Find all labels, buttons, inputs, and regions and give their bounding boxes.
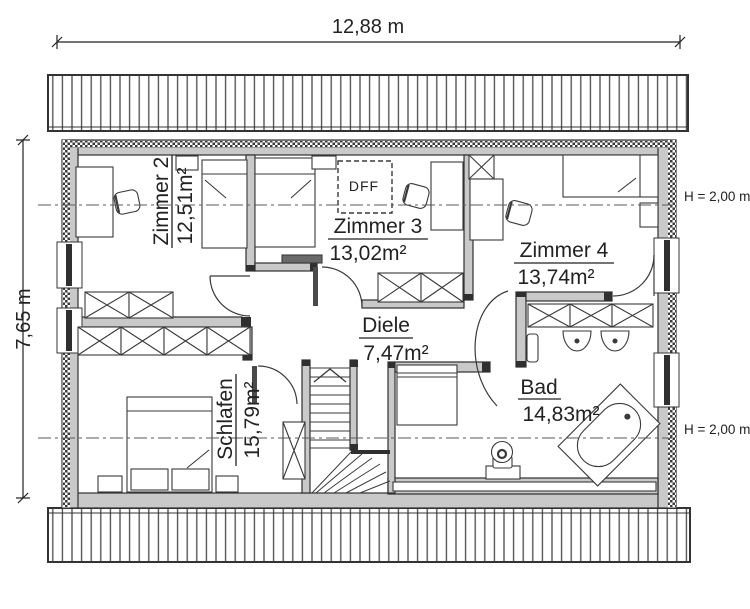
wardrobe-zimmer2 (85, 292, 173, 318)
bed-zimmer2 (202, 160, 247, 248)
nightstand-schlafen-left (98, 476, 122, 492)
room-area-schlafen: 15,79m² (241, 381, 264, 458)
room-label-zimmer4: Zimmer 4 (520, 239, 609, 262)
bed-zimmer4 (563, 155, 658, 197)
roof-overhang-bottom (48, 508, 690, 562)
room-area-bad: 14,83m² (522, 403, 599, 426)
wardrobe-schlafen-tall (283, 422, 305, 479)
roof-overhang-top (48, 75, 688, 131)
radiator-bad (527, 334, 538, 362)
desk-zimmer2 (76, 167, 113, 237)
room-area-zimmer3: 13,02m² (329, 242, 406, 265)
cabinet-row-bad (528, 304, 653, 327)
chimney (312, 156, 336, 169)
wall-zimmer3-diele (255, 263, 317, 271)
wall-exterior-bottom (70, 493, 668, 508)
window-right-zimmer4 (654, 238, 679, 293)
wall-zimmer4-bad (526, 292, 612, 301)
chair-zimmer2 (113, 189, 141, 216)
wall-niche-west (388, 362, 395, 493)
double-bed-schlafen (127, 397, 212, 492)
height-dimension-label: 7,65 m (13, 288, 35, 349)
room-area-zimmer4: 13,74m² (517, 266, 594, 289)
room-label-zimmer2: Zimmer 2 (150, 157, 173, 246)
sideboard-zimmer3 (282, 255, 322, 263)
window-right-bad (654, 353, 679, 407)
floor-plan-drawing: 12,88 m 7,65 m DFF Zimmer 2 12,51m² Zimm… (0, 0, 750, 609)
room-label-schlafen: Schlafen (214, 378, 237, 460)
room-label-zimmer3: Zimmer 3 (334, 215, 423, 238)
nightstand-schlafen-right (216, 476, 238, 492)
room-area-zimmer2: 12,51m² (174, 167, 197, 244)
wardrobe-diele (378, 273, 463, 302)
room-area-diele: 7,47m² (363, 342, 428, 365)
nightstand-zimmer4 (640, 203, 658, 227)
storage-niche-cabinet (397, 365, 457, 425)
room-label-bad: Bad (520, 376, 557, 399)
desk-zimmer4 (470, 179, 503, 240)
window-left-zimmer2 (57, 242, 82, 288)
roof-window-label: DFF (349, 178, 379, 194)
bed-zimmer3 (255, 158, 315, 247)
wardrobe-zimmer4 (469, 155, 494, 179)
width-dimension-label: 12,88 m (332, 16, 404, 38)
stair-railing (350, 360, 357, 450)
kneewall-label-lower: H = 2,00 m (684, 422, 750, 437)
floor-plan: 12,88 m 7,65 m DFF Zimmer 2 12,51m² Zimm… (0, 0, 750, 609)
kneewall-strip (393, 482, 656, 491)
room-label-diele: Diele (362, 314, 410, 337)
desk-zimmer3 (431, 162, 463, 230)
wardrobe-schlafen (78, 327, 250, 355)
wall-bad-west (516, 292, 526, 367)
kneewall-label-upper: H = 2,00 m (684, 189, 750, 204)
